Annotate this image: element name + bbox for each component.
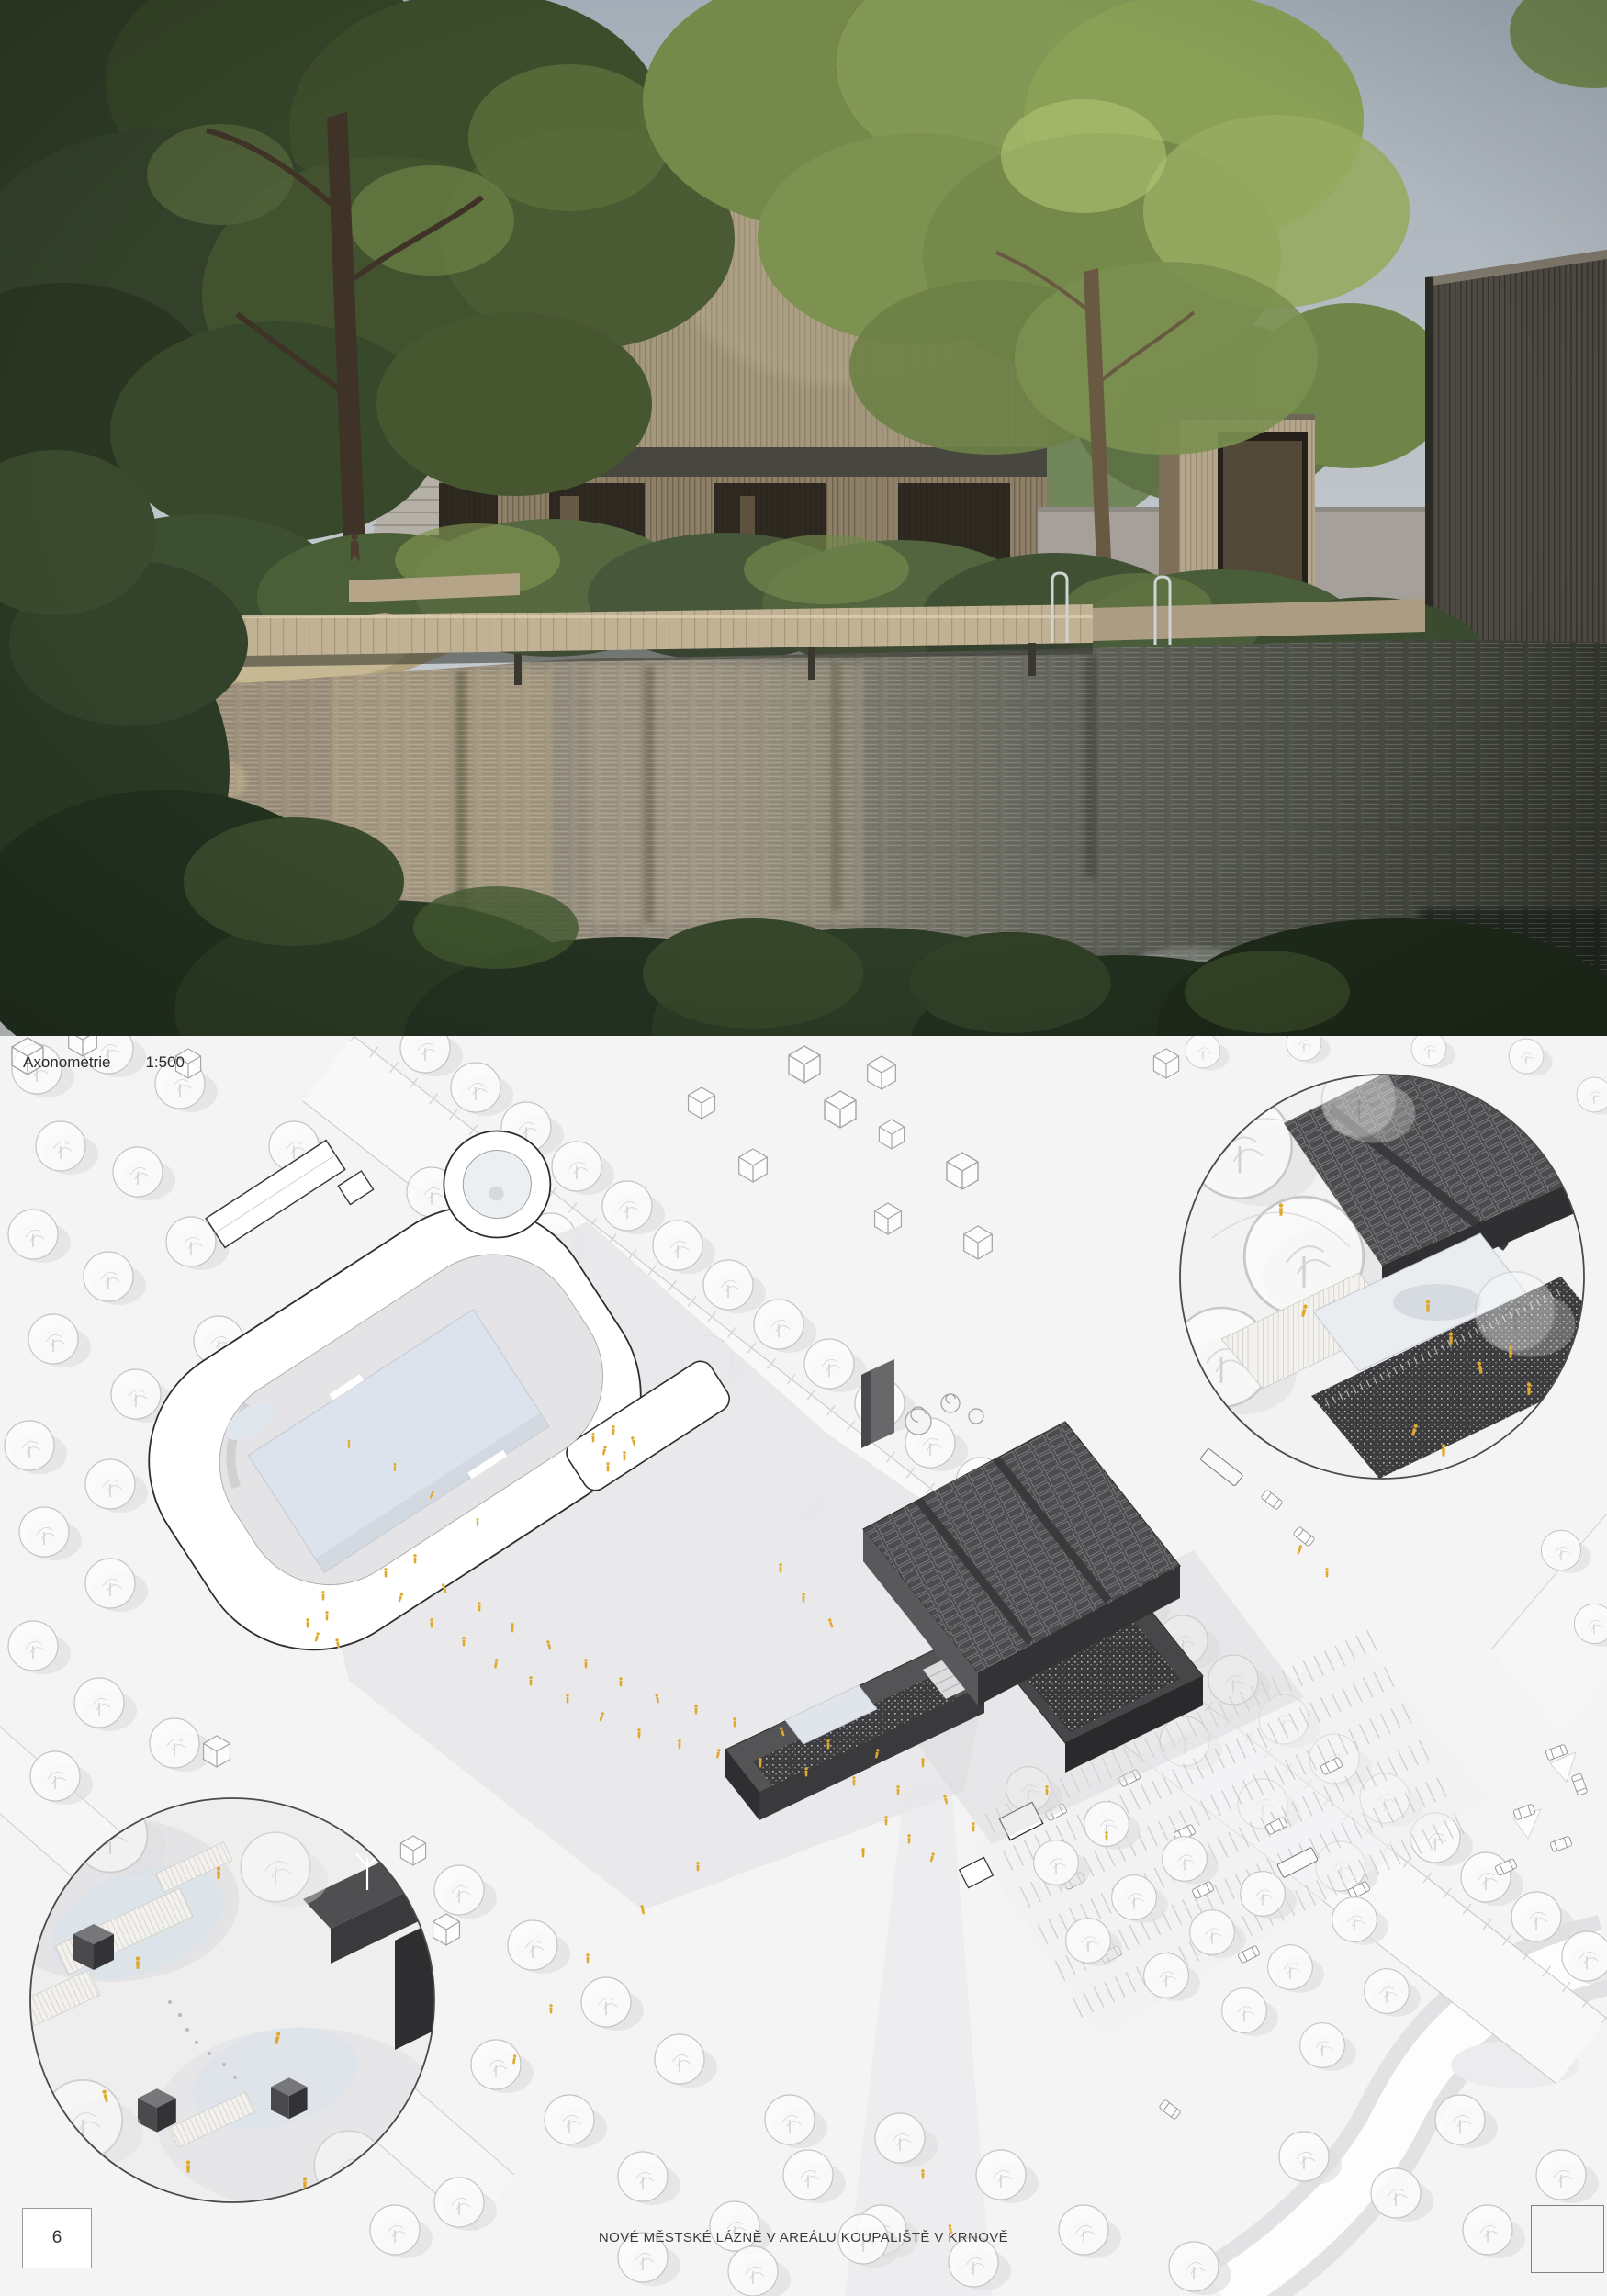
exterior-render-photo	[0, 0, 1607, 1036]
drawing-label-row: Axonometrie 1:500	[23, 1053, 185, 1072]
sheet-title: NOVÉ MĚSTSKÉ LÁZNĚ V AREÁLU KOUPALIŠTĚ V…	[0, 2230, 1607, 2245]
vignette	[0, 0, 1607, 1036]
tower	[861, 1359, 894, 1448]
drawing-label: Axonometrie	[23, 1053, 110, 1072]
axon-scene	[0, 1036, 1607, 2296]
page-number-box: 6	[22, 2208, 92, 2268]
render-scene	[0, 0, 1607, 1036]
drawing-scale: 1:500	[145, 1053, 185, 1072]
presentation-sheet: Axonometrie 1:500 6 NOVÉ MĚSTSKÉ LÁZNĚ V…	[0, 0, 1607, 2296]
corner-frame-box	[1531, 2205, 1604, 2273]
axonometric-site-plan	[0, 1036, 1607, 2296]
page-number: 6	[52, 2228, 62, 2248]
